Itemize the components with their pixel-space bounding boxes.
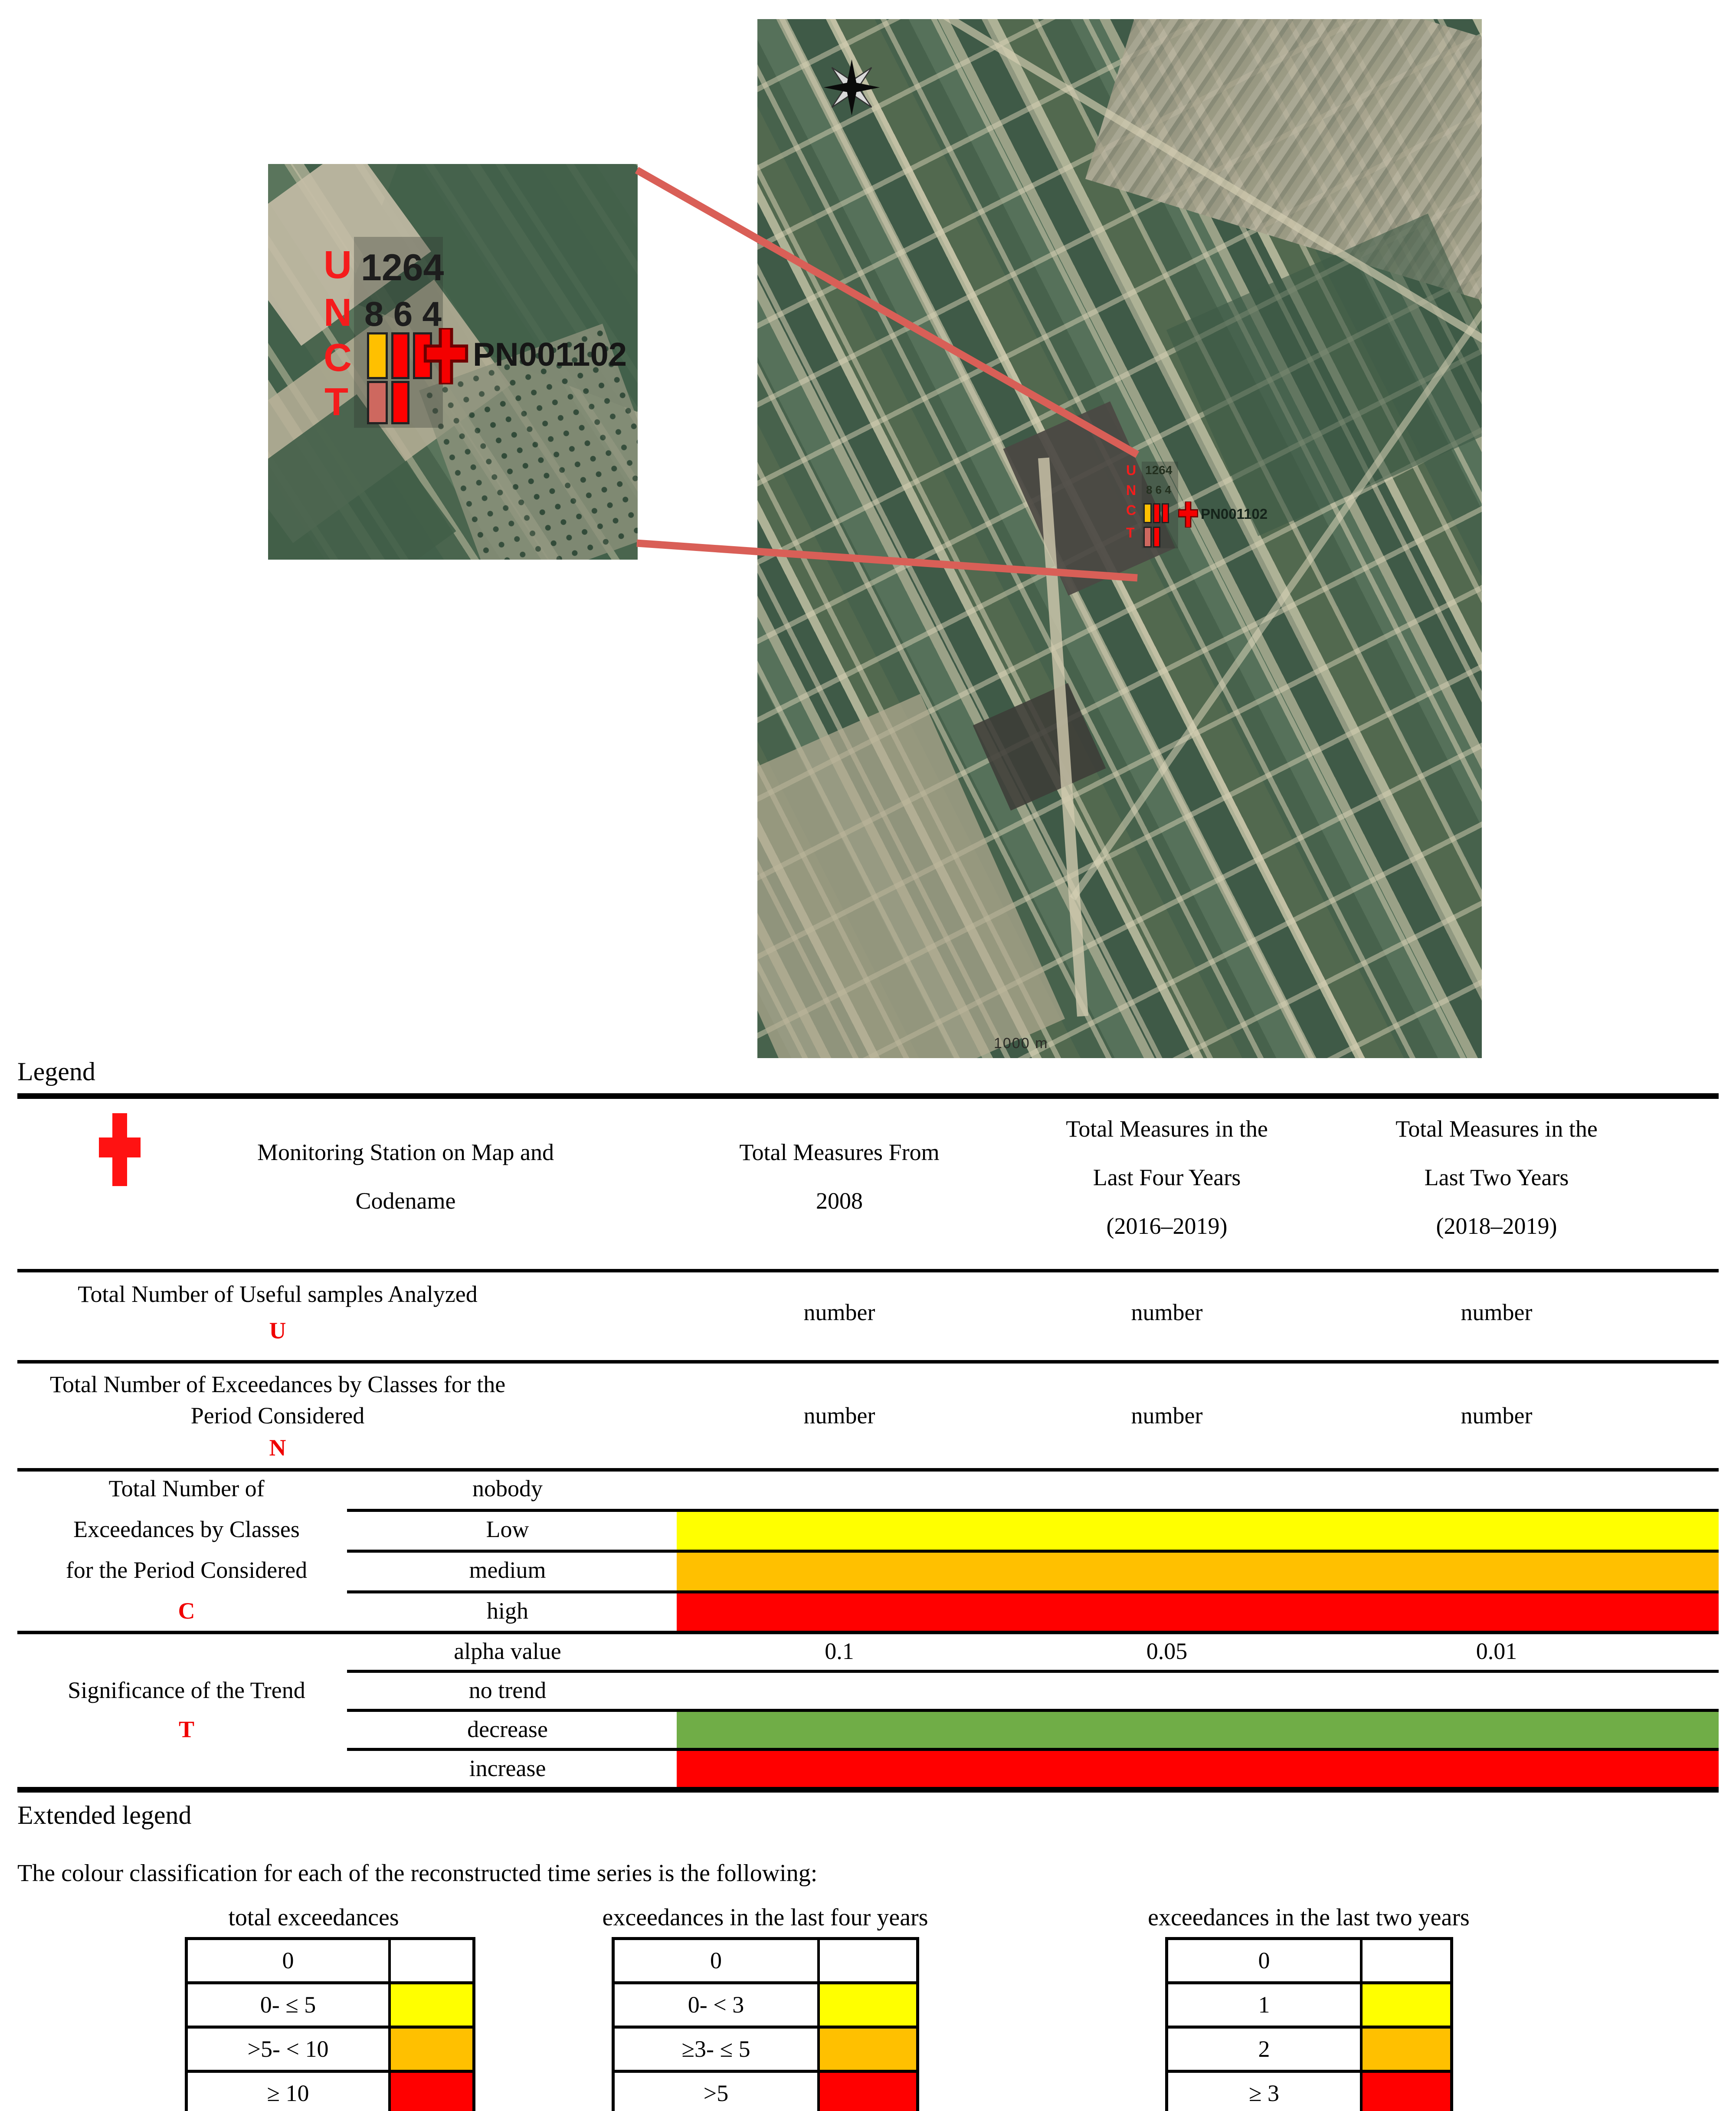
class-color-swatch xyxy=(1360,2029,1450,2070)
c-box-orange xyxy=(367,332,388,379)
band-increase-red xyxy=(677,1748,1719,1787)
table-row: 0- < 3 xyxy=(615,1981,916,2026)
class-label: 0 xyxy=(615,1940,817,1981)
class-label: ≥ 10 xyxy=(188,2073,388,2111)
c-row-medium: medium xyxy=(469,1556,546,1584)
class-color-swatch xyxy=(817,2073,916,2111)
letter-u: U xyxy=(1126,462,1136,479)
class-label: 0- < 3 xyxy=(615,1984,817,2026)
main-satellite-map: U N C T 1264 8 6 4 PN001102 1000 m xyxy=(757,19,1482,1058)
t-row-no-trend: no trend xyxy=(469,1676,546,1705)
band-high-red xyxy=(677,1590,1719,1631)
two-years-line1: Total Measures in the xyxy=(1395,1105,1598,1153)
table-border xyxy=(347,1748,1719,1751)
c-row-high: high xyxy=(487,1596,528,1625)
t-row-decrease: decrease xyxy=(467,1715,548,1744)
class-color-swatch xyxy=(388,2073,472,2111)
station-codename: PN001102 xyxy=(473,336,627,374)
class-label: 0- ≤ 5 xyxy=(188,1984,388,2026)
t-alpha-value: 0.05 xyxy=(1146,1637,1188,1665)
four-years-line2: Last Four Years xyxy=(1066,1153,1268,1202)
class-label: >5 xyxy=(615,2073,817,2111)
class-color-swatch xyxy=(388,1940,472,1981)
class-label: ≥3- ≤ 5 xyxy=(615,2029,817,2070)
row-u-letter: U xyxy=(269,1311,286,1350)
col-header-two-years: Total Measures in the Last Two Years (20… xyxy=(1395,1105,1598,1250)
table-border xyxy=(17,1787,1719,1793)
band-low-yellow xyxy=(677,1509,1719,1550)
u-value: 1264 xyxy=(361,246,444,289)
four-years-line3: (2016–2019) xyxy=(1066,1202,1268,1250)
c-class-boxes xyxy=(367,332,432,379)
letter-n: N xyxy=(1126,482,1136,498)
table-border xyxy=(17,1468,1719,1472)
class-color-swatch xyxy=(817,2029,916,2070)
section-t-label: Significance of the Trend xyxy=(68,1676,305,1705)
from2008-line2: 2008 xyxy=(739,1177,939,1225)
row-n-letter: N xyxy=(269,1428,286,1467)
class-label: 1 xyxy=(1168,1984,1360,2026)
section-c-label-line2: Exceedances by Classes xyxy=(73,1515,300,1544)
table-border xyxy=(17,1360,1719,1364)
u-value: 1264 xyxy=(1145,463,1172,477)
station-cross-icon xyxy=(1178,502,1198,528)
table-row: ≥3- ≤ 5 xyxy=(615,2026,916,2070)
n-values: 8 6 4 xyxy=(1146,483,1171,497)
extended-legend-title: Extended legend xyxy=(17,1800,192,1830)
t-row-alpha-label: alpha value xyxy=(454,1637,561,1665)
t-alpha-value: 0.01 xyxy=(1476,1637,1517,1665)
row-u-value: number xyxy=(1131,1293,1203,1332)
compass-star-icon xyxy=(822,58,881,117)
table-border xyxy=(17,1631,1719,1634)
section-t-letter: T xyxy=(179,1715,194,1744)
extended-table-1-title: total exceedances xyxy=(228,1904,399,1931)
t-box-salmon xyxy=(1143,527,1152,547)
table-border xyxy=(347,1590,1719,1593)
table-row: 0 xyxy=(615,1940,916,1981)
class-color-swatch xyxy=(1360,1940,1450,1981)
station-codename: PN001102 xyxy=(1201,506,1268,522)
class-color-swatch xyxy=(1360,1984,1450,2026)
row-n-value: number xyxy=(1461,1396,1533,1435)
band-medium-orange xyxy=(677,1550,1719,1590)
from2008-line1: Total Measures From xyxy=(739,1128,939,1177)
class-label: ≥ 3 xyxy=(1168,2073,1360,2111)
extended-legend-intro: The colour classification for each of th… xyxy=(17,1859,817,1887)
table-row: 1 xyxy=(1168,1981,1450,2026)
t-box-red xyxy=(391,381,409,424)
station-marker-mini: U N C T 1264 8 6 4 PN001102 xyxy=(1126,462,1274,570)
section-c-letter: C xyxy=(178,1596,195,1625)
letter-t: T xyxy=(324,380,348,425)
table-row: 0- ≤ 5 xyxy=(188,1981,472,2026)
inset-satellite-map: U N C T 1264 8 6 4 PN001102 xyxy=(268,164,638,560)
legend-title: Legend xyxy=(17,1057,95,1087)
extended-table-3-title: exceedances in the last two years xyxy=(1148,1904,1470,1931)
table-row: ≥ 10 xyxy=(188,2070,472,2111)
legend-table: Monitoring Station on Map and Codename T… xyxy=(17,1093,1719,1793)
row-n-value: number xyxy=(804,1396,875,1435)
table-border xyxy=(347,1550,1719,1553)
t-row-increase: increase xyxy=(469,1754,546,1783)
col-header-station: Monitoring Station on Map and Codename xyxy=(257,1128,554,1225)
extended-table-two-years: 0 1 2 ≥ 3 xyxy=(1165,1937,1453,2111)
figure-page: U N C T 1264 8 6 4 PN001102 1000 m xyxy=(0,0,1736,2111)
section-c-label-line1: Total Number of xyxy=(108,1474,264,1503)
row-u-value: number xyxy=(1461,1293,1533,1332)
table-border xyxy=(17,1093,1719,1099)
row-u-label: Total Number of Useful samples Analyzed xyxy=(78,1275,477,1314)
class-label: 0 xyxy=(1168,1940,1360,1981)
table-border xyxy=(17,1269,1719,1272)
class-label: 0 xyxy=(188,1940,388,1981)
c-box-orange xyxy=(1143,503,1152,523)
section-c-label-line3: for the Period Considered xyxy=(66,1556,307,1584)
table-border xyxy=(347,1709,1719,1712)
extended-table-four-years: 0 0- < 3 ≥3- ≤ 5 >5 xyxy=(612,1937,919,2111)
col-header-from2008: Total Measures From 2008 xyxy=(739,1128,939,1225)
two-years-line2: Last Two Years xyxy=(1395,1153,1598,1202)
table-row: >5- < 10 xyxy=(188,2026,472,2070)
table-border xyxy=(347,1509,1719,1512)
station-header-line2: Codename xyxy=(257,1177,554,1225)
extended-table-total: 0 0- ≤ 5 >5- < 10 ≥ 10 xyxy=(185,1937,475,2111)
class-color-swatch xyxy=(817,1984,916,2026)
legend-cross-icon xyxy=(99,1113,141,1186)
table-row: 2 xyxy=(1168,2026,1450,2070)
t-trend-boxes xyxy=(367,381,409,424)
t-box-red xyxy=(1153,527,1160,547)
two-years-line3: (2018–2019) xyxy=(1395,1202,1598,1250)
t-trend-boxes xyxy=(1143,527,1160,547)
class-color-swatch xyxy=(1360,2073,1450,2111)
band-decrease-green xyxy=(677,1709,1719,1748)
class-label: >5- < 10 xyxy=(188,2029,388,2070)
class-color-swatch xyxy=(817,1940,916,1981)
table-row: 0 xyxy=(1168,1940,1450,1981)
table-border xyxy=(347,1670,1719,1673)
station-cross-icon xyxy=(423,328,468,384)
c-row-nobody: nobody xyxy=(472,1474,543,1503)
class-label: 2 xyxy=(1168,2029,1360,2070)
c-row-low: Low xyxy=(486,1515,529,1544)
class-color-swatch xyxy=(388,1984,472,2026)
c-box-red xyxy=(1162,503,1169,523)
station-header-line1: Monitoring Station on Map and xyxy=(257,1128,554,1177)
field-patch xyxy=(973,683,1106,810)
c-box-red xyxy=(1153,503,1160,523)
table-row: ≥ 3 xyxy=(1168,2070,1450,2111)
extended-table-2-title: exceedances in the last four years xyxy=(603,1904,928,1931)
table-row: >5 xyxy=(615,2070,916,2111)
letter-t: T xyxy=(1126,525,1135,541)
col-header-four-years: Total Measures in the Last Four Years (2… xyxy=(1066,1105,1268,1250)
table-row: 0 xyxy=(188,1940,472,1981)
letter-u: U xyxy=(324,243,352,288)
letter-c: C xyxy=(1126,502,1136,518)
four-years-line1: Total Measures in the xyxy=(1066,1105,1268,1153)
letter-c: C xyxy=(324,336,352,380)
t-alpha-value: 0.1 xyxy=(825,1637,854,1665)
map-scale-label: 1000 m xyxy=(994,1035,1048,1052)
t-box-salmon xyxy=(367,381,388,424)
c-box-red xyxy=(391,332,409,379)
c-class-boxes xyxy=(1143,503,1169,523)
letter-n: N xyxy=(324,291,352,335)
row-u-value: number xyxy=(804,1293,875,1332)
row-n-value: number xyxy=(1131,1396,1203,1435)
class-color-swatch xyxy=(388,2029,472,2070)
